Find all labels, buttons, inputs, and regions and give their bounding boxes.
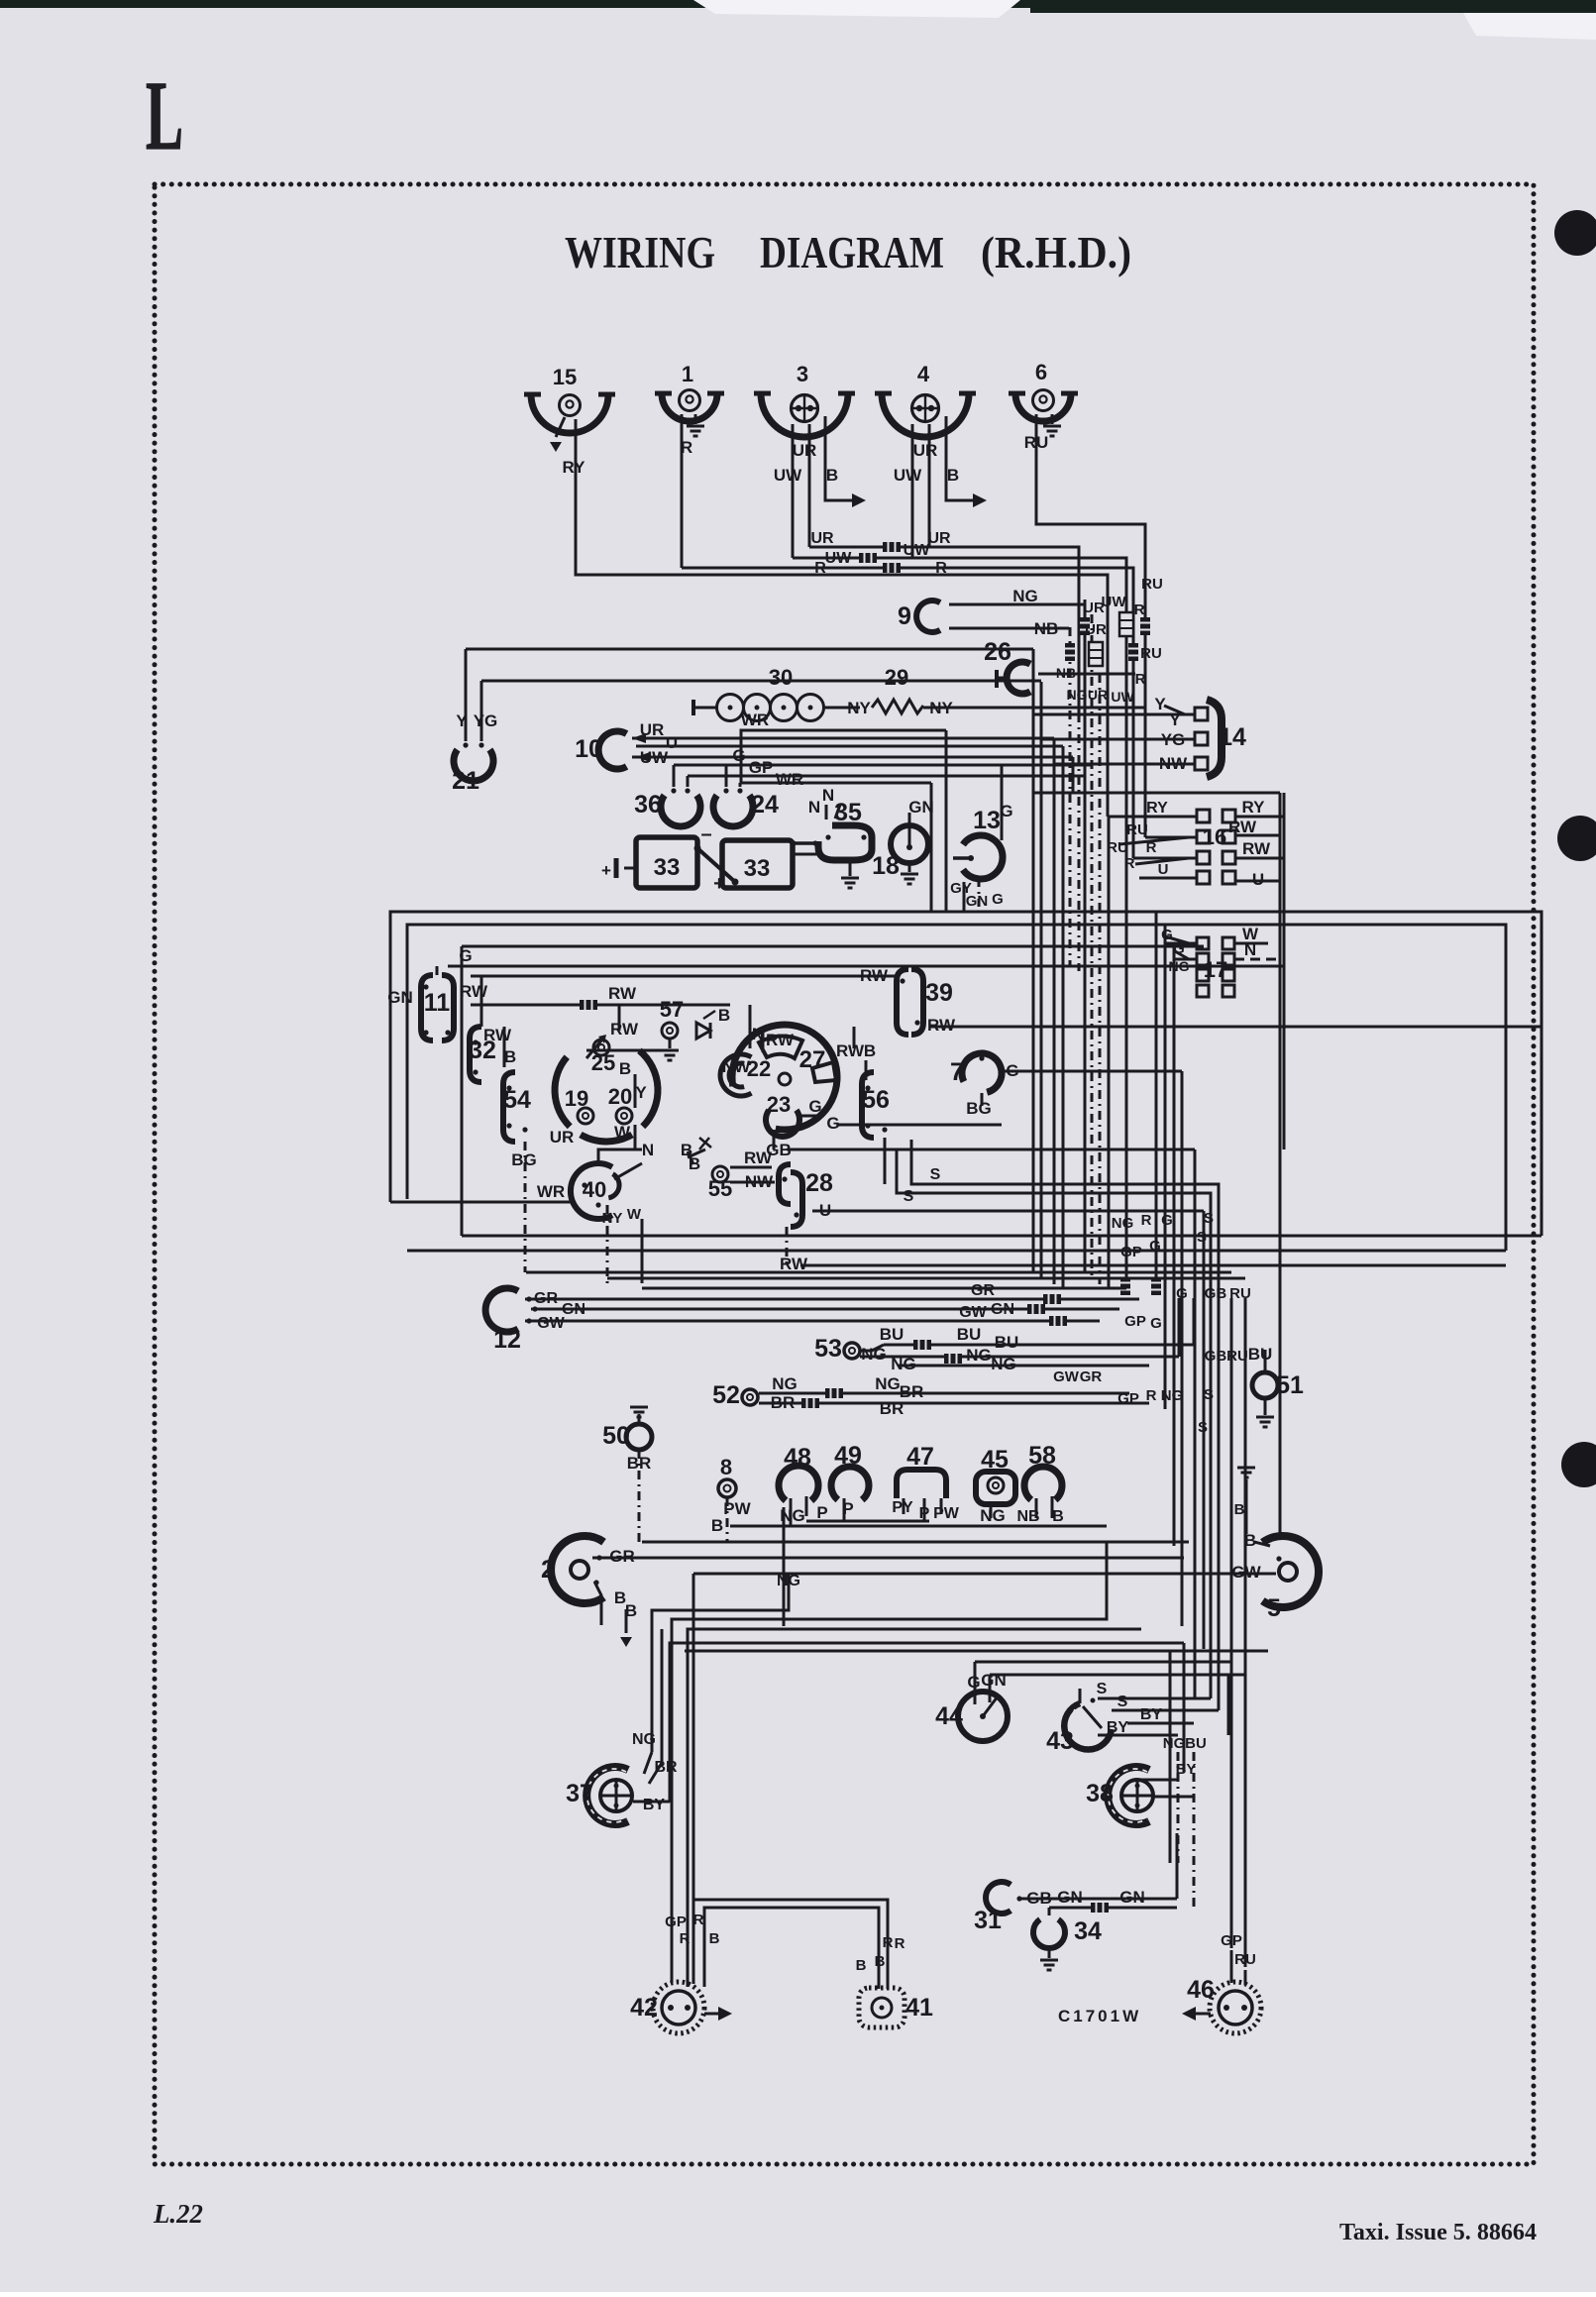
svg-text:R: R [1135,671,1146,688]
svg-text:R: R [883,1934,894,1951]
svg-text:NY: NY [847,699,871,717]
svg-text:54: 54 [503,1086,531,1114]
svg-text:Y: Y [635,1083,647,1102]
svg-text:27: 27 [799,1046,826,1073]
svg-text:30: 30 [769,665,793,690]
svg-text:B: B [1234,1501,1245,1518]
svg-text:58: 58 [1028,1442,1056,1470]
svg-text:3: 3 [797,362,808,386]
svg-text:GN: GN [387,988,413,1007]
svg-text:5: 5 [1267,1594,1281,1622]
svg-text:GP: GP [1221,1932,1242,1949]
svg-text:45: 45 [981,1446,1009,1474]
svg-text:9: 9 [898,602,911,630]
svg-text:GN: GN [991,1301,1014,1318]
svg-text:GB: GB [1205,1285,1227,1302]
svg-text:GW: GW [959,1304,987,1321]
svg-text:GP: GP [749,758,774,777]
svg-text:S: S [1204,1210,1214,1227]
svg-text:G: G [732,746,745,765]
svg-text:UW: UW [774,466,802,485]
svg-text:RW: RW [1228,818,1257,836]
svg-text:WR: WR [741,711,769,729]
svg-text:S: S [1097,1681,1108,1697]
svg-text:18: 18 [872,852,900,880]
svg-text:RU: RU [1107,839,1128,856]
svg-text:B: B [711,1516,723,1535]
svg-text:YG: YG [1161,730,1186,749]
svg-text:RW: RW [744,1148,773,1167]
svg-text:26: 26 [984,638,1011,666]
svg-text:G: G [1173,940,1185,957]
svg-text:S: S [1198,1419,1208,1436]
svg-text:U: U [1252,870,1264,889]
svg-text:U: U [819,1201,831,1220]
svg-text:UR: UR [640,720,665,739]
svg-text:GN: GN [562,1301,585,1318]
svg-text:BU: BU [1248,1345,1273,1364]
svg-text:WR: WR [776,770,803,789]
svg-text:44: 44 [935,1702,963,1730]
svg-text:R: R [1146,1387,1157,1404]
svg-text:DIAGRAM: DIAGRAM [760,228,944,277]
svg-text:R: R [1146,839,1157,856]
svg-text:UW: UW [1111,689,1134,705]
svg-text:1: 1 [682,362,693,386]
svg-text:B: B [1052,1508,1064,1525]
svg-text:NG: NG [1163,1735,1186,1752]
svg-text:NG: NG [772,1374,798,1393]
svg-text:R: R [680,1930,691,1947]
svg-text:51: 51 [1276,1371,1304,1399]
svg-text:R: R [1141,1212,1152,1229]
svg-text:38: 38 [1086,1780,1114,1807]
svg-text:GR: GR [534,1290,558,1307]
svg-text:GP: GP [1117,1390,1139,1407]
svg-text:7: 7 [950,1058,964,1086]
svg-text:BR: BR [880,1399,904,1418]
svg-text:G: G [459,946,472,965]
svg-text:R: R [1124,855,1135,872]
svg-text:W: W [614,1123,631,1142]
svg-text:L: L [146,60,183,170]
svg-text:41: 41 [905,1994,933,2022]
svg-text:57: 57 [660,997,684,1022]
svg-text:RU: RU [1140,645,1162,662]
svg-text:G: G [1006,1061,1018,1080]
svg-text:GR: GR [609,1547,635,1566]
svg-text:GB: GB [1205,1348,1227,1365]
svg-text:UW: UW [640,748,669,767]
svg-text:R: R [1134,602,1145,618]
svg-text:BU: BU [995,1333,1019,1352]
svg-text:UW: UW [1102,594,1127,610]
svg-text:25: 25 [591,1050,615,1075]
svg-text:47: 47 [906,1443,934,1471]
svg-text:S: S [930,1166,941,1183]
svg-text:GP: GP [1124,1313,1146,1330]
svg-text:NB: NB [1016,1508,1039,1525]
svg-text:UR: UR [810,530,834,547]
svg-text:R: R [681,438,692,457]
svg-text:4: 4 [917,362,930,386]
svg-text:NG: NG [1067,687,1088,703]
svg-text:G: G [1000,802,1012,820]
svg-text:10: 10 [575,735,602,763]
svg-text:GN: GN [1119,1888,1145,1907]
svg-text:NG: NG [891,1355,916,1373]
svg-text:BY: BY [1107,1719,1129,1736]
svg-text:UR: UR [550,1128,575,1147]
svg-text:RW: RW [483,1026,512,1044]
svg-text:RW: RW [608,984,637,1003]
svg-text:S: S [1204,1386,1214,1403]
svg-text:37: 37 [566,1780,593,1807]
svg-text:8: 8 [720,1455,732,1479]
svg-text:20: 20 [608,1084,632,1109]
svg-text:G: G [1161,927,1173,943]
svg-text:PW: PW [723,1499,751,1518]
svg-text:U: U [1158,861,1169,878]
svg-text:34: 34 [1074,1917,1102,1945]
svg-text:UR: UR [927,530,951,547]
svg-text:GB: GB [1026,1889,1052,1908]
svg-text:(R.H.D.): (R.H.D.) [981,228,1131,277]
svg-text:B: B [689,1154,700,1173]
svg-text:11: 11 [424,989,451,1017]
svg-text:S: S [1117,1694,1128,1710]
svg-text:GN: GN [966,893,989,910]
svg-text:BR: BR [771,1393,796,1412]
svg-text:G: G [1161,1212,1173,1229]
svg-text:RU: RU [1126,821,1148,838]
svg-text:GP: GP [1120,1244,1142,1260]
svg-text:WR: WR [537,1182,565,1201]
svg-text:36: 36 [634,791,662,819]
svg-text:49: 49 [834,1442,862,1470]
svg-text:RW: RW [1242,839,1271,858]
svg-text:NG: NG [632,1731,656,1748]
svg-text:RU: RU [1141,576,1163,593]
svg-text:R: R [814,560,826,577]
svg-text:R: R [895,1935,905,1952]
svg-text:46: 46 [1187,1976,1215,2004]
svg-text:PW: PW [933,1505,960,1522]
svg-text:G: G [826,1114,839,1133]
svg-text:–: – [700,823,711,845]
svg-text:YG: YG [474,711,498,730]
svg-text:BU: BU [957,1325,982,1344]
svg-text:50: 50 [602,1422,630,1450]
svg-text:NY: NY [602,1210,623,1227]
svg-text:NG: NG [1112,1215,1134,1232]
svg-text:BU: BU [880,1325,904,1344]
svg-text:W: W [627,1206,642,1223]
svg-text:22: 22 [747,1056,771,1081]
svg-text:N: N [808,798,820,817]
svg-text:L.22: L.22 [153,2199,203,2229]
svg-text:UR: UR [1088,687,1108,703]
svg-text:S: S [904,1188,914,1205]
svg-text:P: P [816,1503,827,1522]
svg-text:21: 21 [452,767,479,795]
svg-text:52: 52 [712,1381,740,1409]
svg-text:C1701W: C1701W [1058,2007,1141,2025]
svg-text:NG: NG [980,1506,1006,1525]
svg-text:28: 28 [805,1169,833,1197]
svg-text:BY: BY [1140,1706,1163,1723]
svg-text:NW: NW [1159,754,1188,773]
svg-text:40: 40 [583,1177,606,1202]
svg-text:15: 15 [553,365,577,389]
svg-text:G: G [1149,1238,1161,1255]
svg-text:17: 17 [1204,957,1227,982]
svg-text:RW: RW [460,982,488,1001]
svg-text:NG: NG [861,1345,887,1364]
svg-text:12: 12 [493,1326,521,1354]
svg-text:RY: RY [1242,798,1266,817]
svg-text:B: B [504,1047,516,1066]
svg-text:PY: PY [892,1499,913,1516]
svg-text:RY: RY [1146,800,1168,817]
svg-text:GW: GW [1053,1368,1080,1385]
svg-text:NW: NW [745,1172,774,1191]
svg-text:UR: UR [1085,621,1107,638]
svg-text:NG: NG [1012,587,1038,605]
svg-text:NG: NG [875,1374,901,1393]
svg-text:+: + [713,873,725,895]
svg-text:B: B [875,1953,886,1970]
svg-text:UW: UW [894,466,922,485]
svg-text:NG: NG [966,1346,992,1365]
svg-text:B: B [718,1006,730,1025]
svg-text:56: 56 [862,1086,890,1114]
svg-text:NG: NG [777,1573,800,1589]
svg-text:RU: RU [1234,1951,1256,1968]
svg-text:16: 16 [1203,824,1226,849]
svg-text:RU: RU [1229,1285,1251,1302]
svg-text:2: 2 [541,1556,555,1584]
svg-text:R: R [935,560,947,577]
svg-text:RW: RW [610,1020,639,1039]
svg-text:Y: Y [1154,695,1166,713]
svg-text:NB: NB [1034,619,1059,638]
svg-text:43: 43 [1046,1727,1074,1755]
svg-text:14: 14 [1219,723,1246,751]
svg-text:P: P [919,1505,930,1522]
svg-text:23: 23 [767,1092,791,1117]
svg-text:NG: NG [1161,1387,1184,1404]
svg-text:GR: GR [1080,1368,1103,1385]
svg-text:29: 29 [885,665,908,690]
svg-text:B: B [826,466,838,485]
svg-text:GP: GP [665,1914,687,1930]
svg-text:WIRING: WIRING [565,228,715,277]
svg-text:BY: BY [643,1797,666,1813]
svg-text:B: B [619,1059,631,1078]
svg-text:GR: GR [971,1282,995,1299]
svg-text:Taxi. Issue 5. 88664: Taxi. Issue 5. 88664 [1339,2220,1537,2245]
svg-text:42: 42 [630,1994,658,2022]
svg-text:G: G [1150,1315,1162,1332]
svg-text:RW: RW [836,1041,865,1060]
svg-text:G: G [992,891,1004,908]
svg-text:33: 33 [654,854,681,881]
svg-text:B: B [709,1930,720,1947]
svg-text:B: B [947,466,959,485]
svg-text:RU: RU [1226,1348,1248,1365]
svg-text:B: B [856,1957,867,1974]
svg-text:GW: GW [537,1315,565,1332]
svg-text:+: + [601,861,611,880]
svg-text:13: 13 [973,807,1001,834]
svg-text:GN: GN [1057,1888,1083,1907]
svg-text:UW: UW [825,550,853,567]
svg-text:UW: UW [904,542,931,559]
svg-text:Y: Y [456,711,468,730]
svg-text:53: 53 [814,1335,842,1363]
svg-text:RW: RW [860,966,889,985]
svg-text:19: 19 [565,1086,588,1111]
svg-text:NG: NG [991,1355,1016,1373]
svg-text:RY: RY [563,458,586,477]
svg-text:B: B [864,1041,876,1060]
svg-text:48: 48 [784,1444,811,1472]
svg-text:G: G [808,1097,821,1116]
svg-text:BU: BU [1185,1735,1207,1752]
svg-text:39: 39 [925,979,953,1007]
svg-text:N: N [822,786,834,805]
svg-text:P: P [842,1499,853,1518]
svg-text:N: N [642,1141,654,1159]
svg-text:UR: UR [793,441,817,460]
svg-text:Y: Y [1169,711,1181,729]
svg-text:31: 31 [974,1907,1002,1934]
svg-text:55: 55 [708,1176,732,1201]
svg-text:RW: RW [766,1031,795,1049]
svg-text:33: 33 [744,855,771,882]
svg-text:N: N [1244,940,1256,959]
svg-text:S: S [1197,1229,1207,1246]
svg-text:UR: UR [913,441,938,460]
svg-text:24: 24 [751,791,779,819]
svg-text:6: 6 [1035,360,1047,384]
svg-text:BG: BG [966,1099,992,1118]
